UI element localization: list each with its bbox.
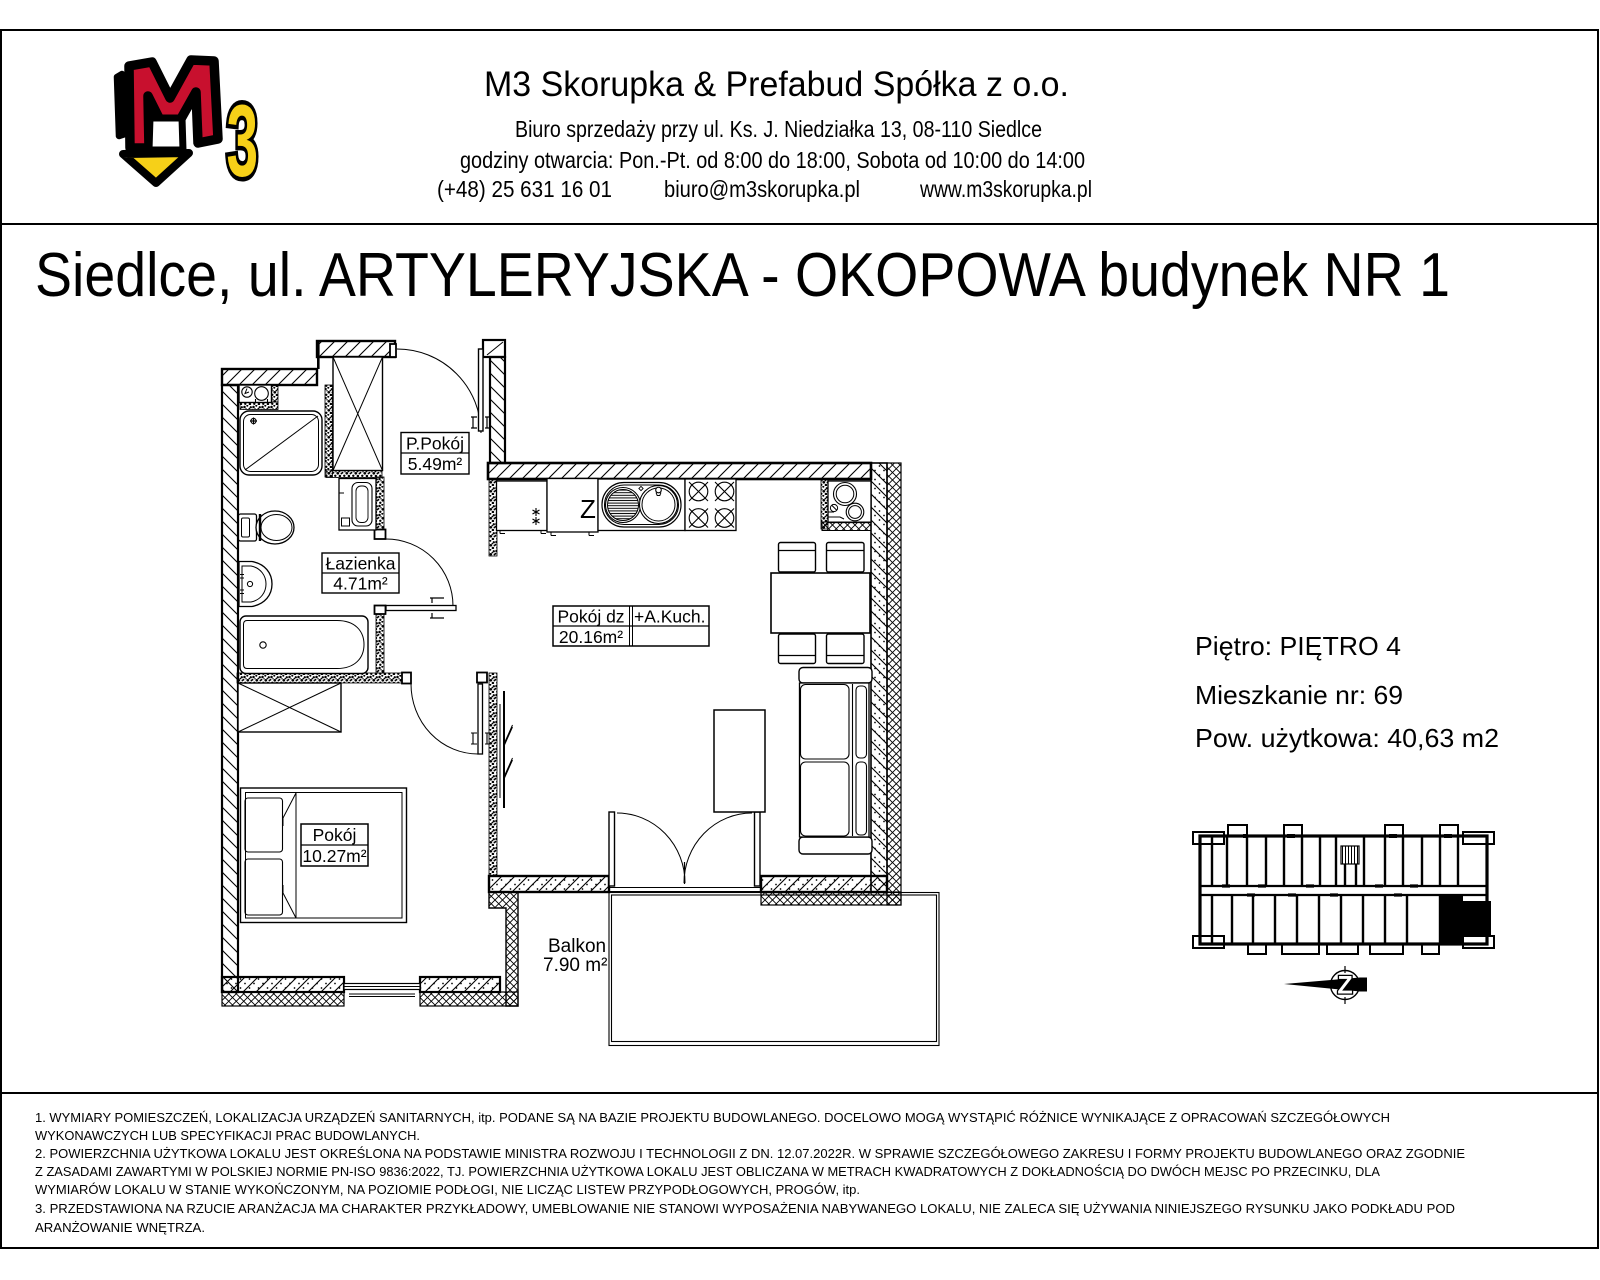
svg-text:Łazienka: Łazienka <box>325 554 395 574</box>
svg-text:3: 3 <box>226 85 258 199</box>
svg-text:(+48) 25 631 16 01: (+48) 25 631 16 01 <box>437 176 612 202</box>
svg-text:godziny otwarcia: Pon.-Pt. od: godziny otwarcia: Pon.-Pt. od 8:00 do 18… <box>460 147 1085 173</box>
svg-text:Balkon: Balkon <box>548 936 606 957</box>
svg-text:Pow. użytkowa: 40,63 m2: Pow. użytkowa: 40,63 m2 <box>1195 723 1499 753</box>
svg-text:+A.Kuch.: +A.Kuch. <box>634 607 706 627</box>
svg-text:4.71m²: 4.71m² <box>333 574 388 594</box>
svg-text:Pokój: Pokój <box>313 825 357 845</box>
svg-text:Z ZASADAMI ZAWARTYMI W POLSKIE: Z ZASADAMI ZAWARTYMI W POLSKIEJ NORMIE P… <box>35 1164 1380 1179</box>
svg-text:Siedlce, ul. ARTYLERYJSKA - OK: Siedlce, ul. ARTYLERYJSKA - OKOPOWA budy… <box>35 241 1450 310</box>
svg-text:10.27m²: 10.27m² <box>302 846 366 866</box>
svg-text:20.16m²: 20.16m² <box>559 627 623 647</box>
svg-text:2. POWIERZCHNIA UŻYTKOWA LOKAL: 2. POWIERZCHNIA UŻYTKOWA LOKALU JEST OKR… <box>35 1146 1465 1161</box>
svg-text:Z: Z <box>580 494 596 524</box>
svg-text:WYKONAWCZYCH LUB SPECYFIKACJI: WYKONAWCZYCH LUB SPECYFIKACJI PRAC BUDOW… <box>35 1128 420 1143</box>
svg-text:Biuro sprzedaży przy ul. Ks. J: Biuro sprzedaży przy ul. Ks. J. Niedział… <box>515 116 1042 142</box>
svg-text:P.Pokój: P.Pokój <box>406 434 464 454</box>
svg-text:Pokój dz: Pokój dz <box>557 607 624 627</box>
svg-text:Mieszkanie nr: 69: Mieszkanie nr: 69 <box>1195 680 1403 710</box>
svg-text:7.90 m²: 7.90 m² <box>543 955 607 976</box>
svg-text:Z: Z <box>1337 972 1352 1000</box>
svg-text:www.m3skorupka.pl: www.m3skorupka.pl <box>919 176 1092 202</box>
svg-text:5.49m²: 5.49m² <box>408 454 463 474</box>
svg-text:WYMIARÓW LOKALU W STANIE WYKOŃ: WYMIARÓW LOKALU W STANIE WYKOŃCZONYM, NA… <box>35 1182 860 1197</box>
svg-text:ARANŻOWANIE WNĘTRZA.: ARANŻOWANIE WNĘTRZA. <box>35 1220 205 1235</box>
svg-text:Piętro: PIĘTRO 4: Piętro: PIĘTRO 4 <box>1195 631 1401 661</box>
svg-text:1. WYMIARY POMIESZCZEŃ, LOKALI: 1. WYMIARY POMIESZCZEŃ, LOKALIZACJA URZĄ… <box>35 1110 1390 1125</box>
svg-text:biuro@m3skorupka.pl: biuro@m3skorupka.pl <box>664 176 860 202</box>
svg-text:M3 Skorupka & Prefabud Spółka: M3 Skorupka & Prefabud Spółka z o.o. <box>484 65 1069 104</box>
svg-text:3. PRZEDSTAWIONA NA RZUCIE ARA: 3. PRZEDSTAWIONA NA RZUCIE ARANŻACJA MA … <box>35 1201 1455 1216</box>
